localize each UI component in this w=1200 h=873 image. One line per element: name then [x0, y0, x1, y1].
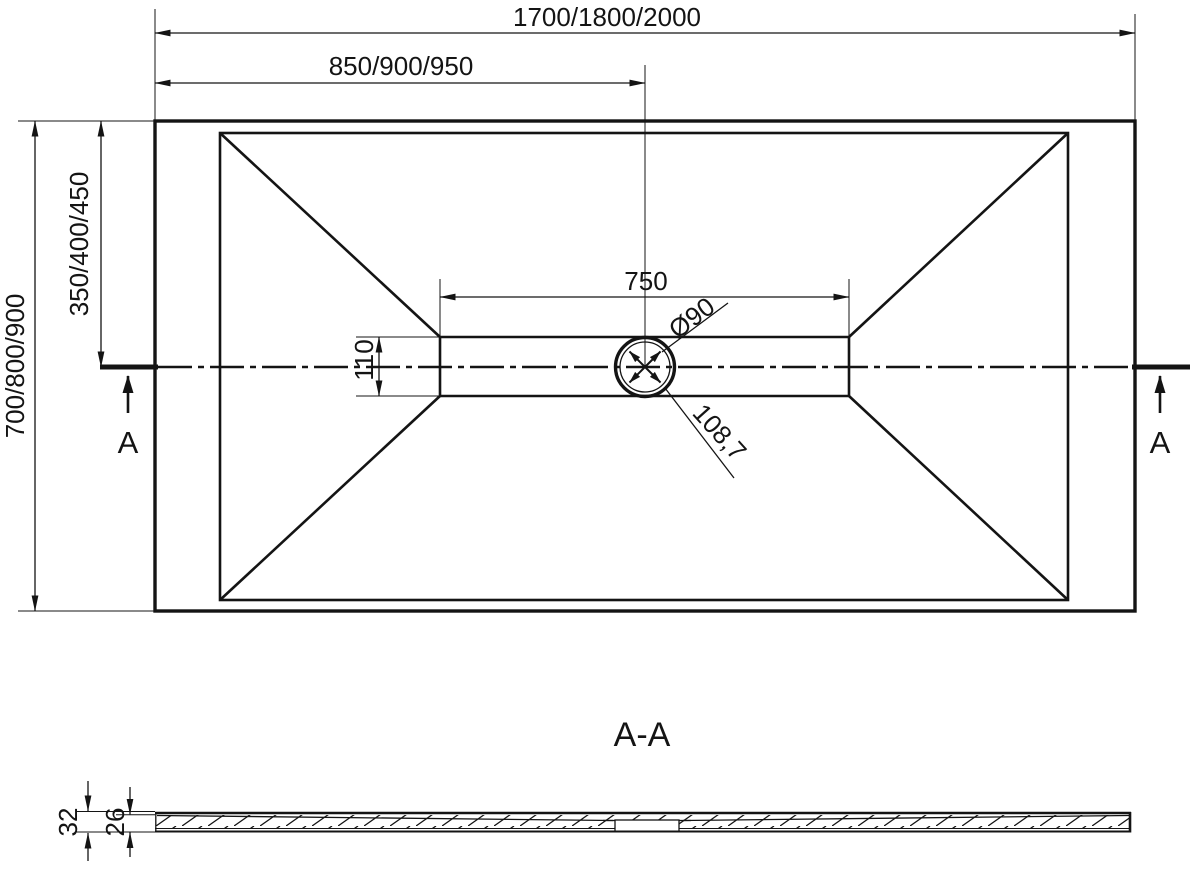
dim-half-width-label: 850/900/950: [329, 51, 474, 81]
section-total-thickness-label: 32: [53, 808, 83, 837]
section-base-thickness-label: 26: [100, 808, 130, 837]
section-marker-left-label: A: [118, 425, 139, 460]
plan-view: [18, 9, 1190, 611]
section-cut-line: [100, 367, 1190, 413]
dim-channel-length-label: 750: [624, 266, 667, 296]
section-title: A-A: [614, 716, 671, 754]
dim-half-height-label: 350/400/450: [64, 172, 94, 317]
dim-total-width-label: 1700/1800/2000: [513, 2, 701, 32]
technical-drawing: 1700/1800/2000 850/900/950 700/800/900 3…: [0, 0, 1200, 873]
section-marker-right-label: A: [1150, 425, 1171, 460]
section-view: [76, 781, 1131, 861]
dim-total-height-label: 700/800/900: [0, 294, 30, 439]
drain-diagonal-label: 108,7: [687, 398, 753, 466]
section-drain-recess: [615, 820, 679, 832]
extension-lines: [18, 9, 1135, 611]
labels: 1700/1800/2000 850/900/950 700/800/900 3…: [0, 2, 1171, 836]
dim-channel-width-label: 110: [349, 339, 379, 380]
